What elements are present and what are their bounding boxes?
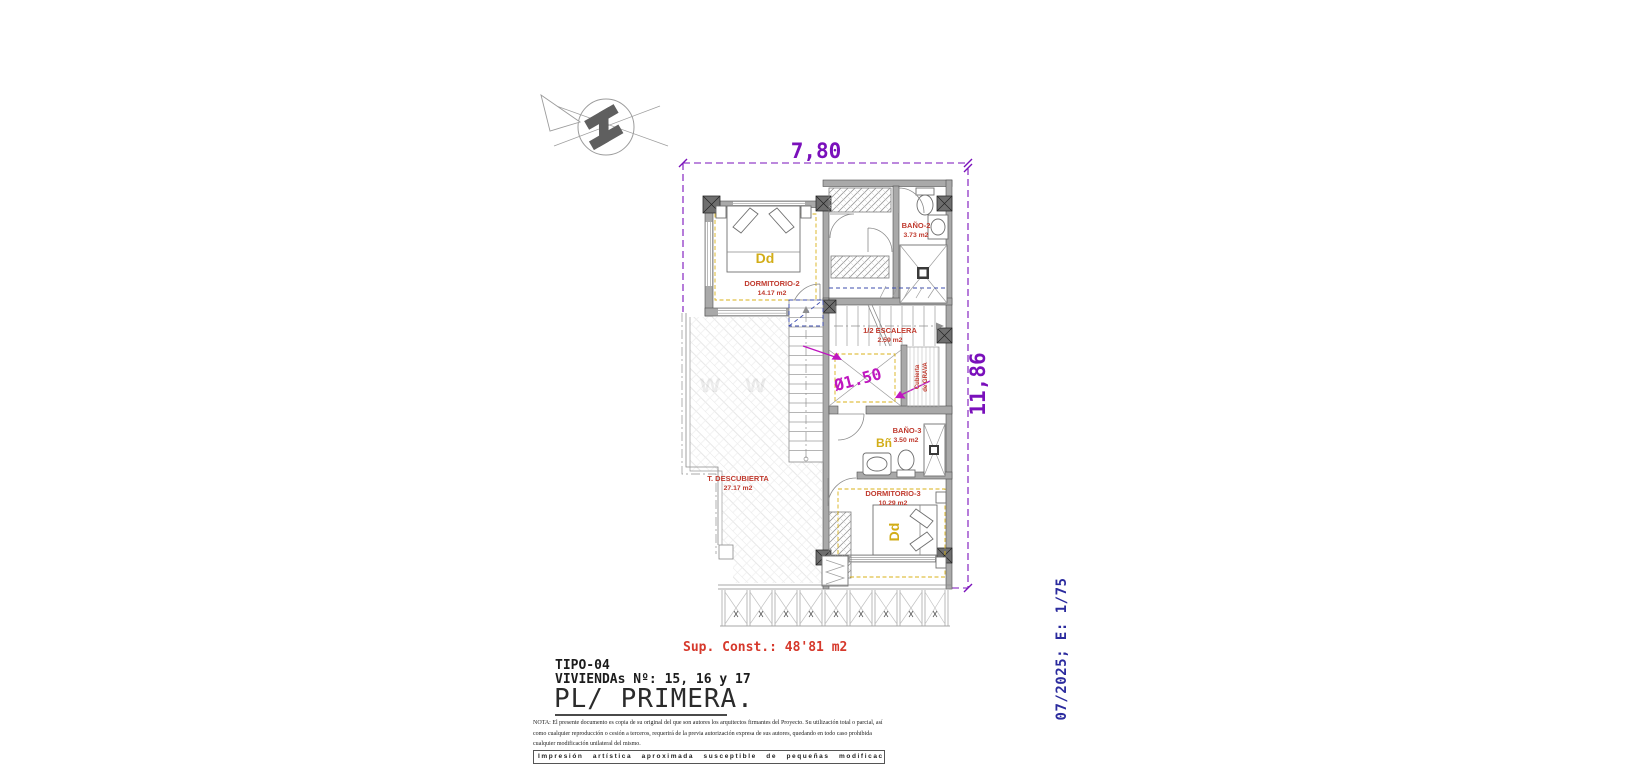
disclaimer-strip: Impresión artística aproximada susceptib…: [533, 750, 885, 764]
room-dormitorio2-area: 14.17 m2: [758, 290, 787, 297]
legal-note-line3: cualquier modificación unilateral del mi…: [533, 739, 883, 750]
dimension-height-label: 11,86: [966, 352, 990, 415]
exterior-stair: [789, 300, 823, 462]
dimension-width-label: 7,80: [791, 139, 842, 163]
room-terraza-name: T. DESCUBIERTA: [707, 474, 769, 483]
room-bano2-area: 3.73 m2: [904, 232, 929, 239]
room-dormitorio2-tag: Dd: [756, 250, 775, 266]
room-bano3-area: 3.50 m2: [894, 437, 919, 444]
north-arrow-icon: [541, 95, 668, 155]
room-escalera: 1/2 ESCALERA 2.59 m2: [829, 286, 948, 346]
gravel-label-1: Cubierta: [915, 364, 921, 389]
legal-note-line1: NOTA: El presente documento es copia de …: [533, 718, 883, 729]
room-terraza-area: 27.17 m2: [724, 485, 753, 492]
built-area-label: Sup. Const.: 48'81 m2: [683, 640, 847, 655]
legal-note: NOTA: El presente documento es copia de …: [533, 718, 883, 750]
room-escalera-name: 1/2 ESCALERA: [863, 326, 917, 335]
plan-title: PL/ PRIMERA.: [554, 684, 754, 714]
room-bano3-tag: Bñ: [876, 436, 892, 450]
shaft-diameter-label: Ø1.50: [831, 364, 883, 395]
floor-plan-sheet: 7,80 11,86 T. DESCUBIERTA 27.17 m2 w w w: [0, 0, 1638, 773]
plan-title-underline: [555, 714, 727, 716]
room-bano3-name: BAÑO-3: [893, 426, 922, 435]
floor-plan-drawing: 7,80 11,86 T. DESCUBIERTA 27.17 m2 w w w: [0, 0, 1638, 773]
room-dormitorio2: Dd DORMITORIO-2 14.17 m2: [715, 206, 820, 312]
room-dormitorio3-area: 10.29 m2: [879, 500, 908, 507]
gravel-strip: Cubierta de GRAVA: [907, 347, 939, 407]
room-dormitorio3-name: DORMITORIO-3: [865, 489, 920, 498]
legal-note-line2: como cualquier reproducción o cesión a t…: [533, 729, 883, 740]
gravel-label-2: de GRAVA: [923, 362, 929, 392]
room-dormitorio3-tag: Dd: [886, 523, 902, 542]
room-bano2-name: BAÑO-2: [902, 221, 931, 230]
dimension-height: 11,86: [952, 164, 990, 592]
room-bano3: Bñ BAÑO-3 3.50 m2: [838, 414, 945, 477]
date-scale-label: 07/2025; E: 1/75: [1053, 569, 1071, 729]
room-dormitorio2-name: DORMITORIO-2: [744, 279, 799, 288]
type-label: TIPO-04: [555, 658, 610, 673]
railing: [718, 585, 952, 626]
room-escalera-area: 2.59 m2: [878, 337, 903, 344]
